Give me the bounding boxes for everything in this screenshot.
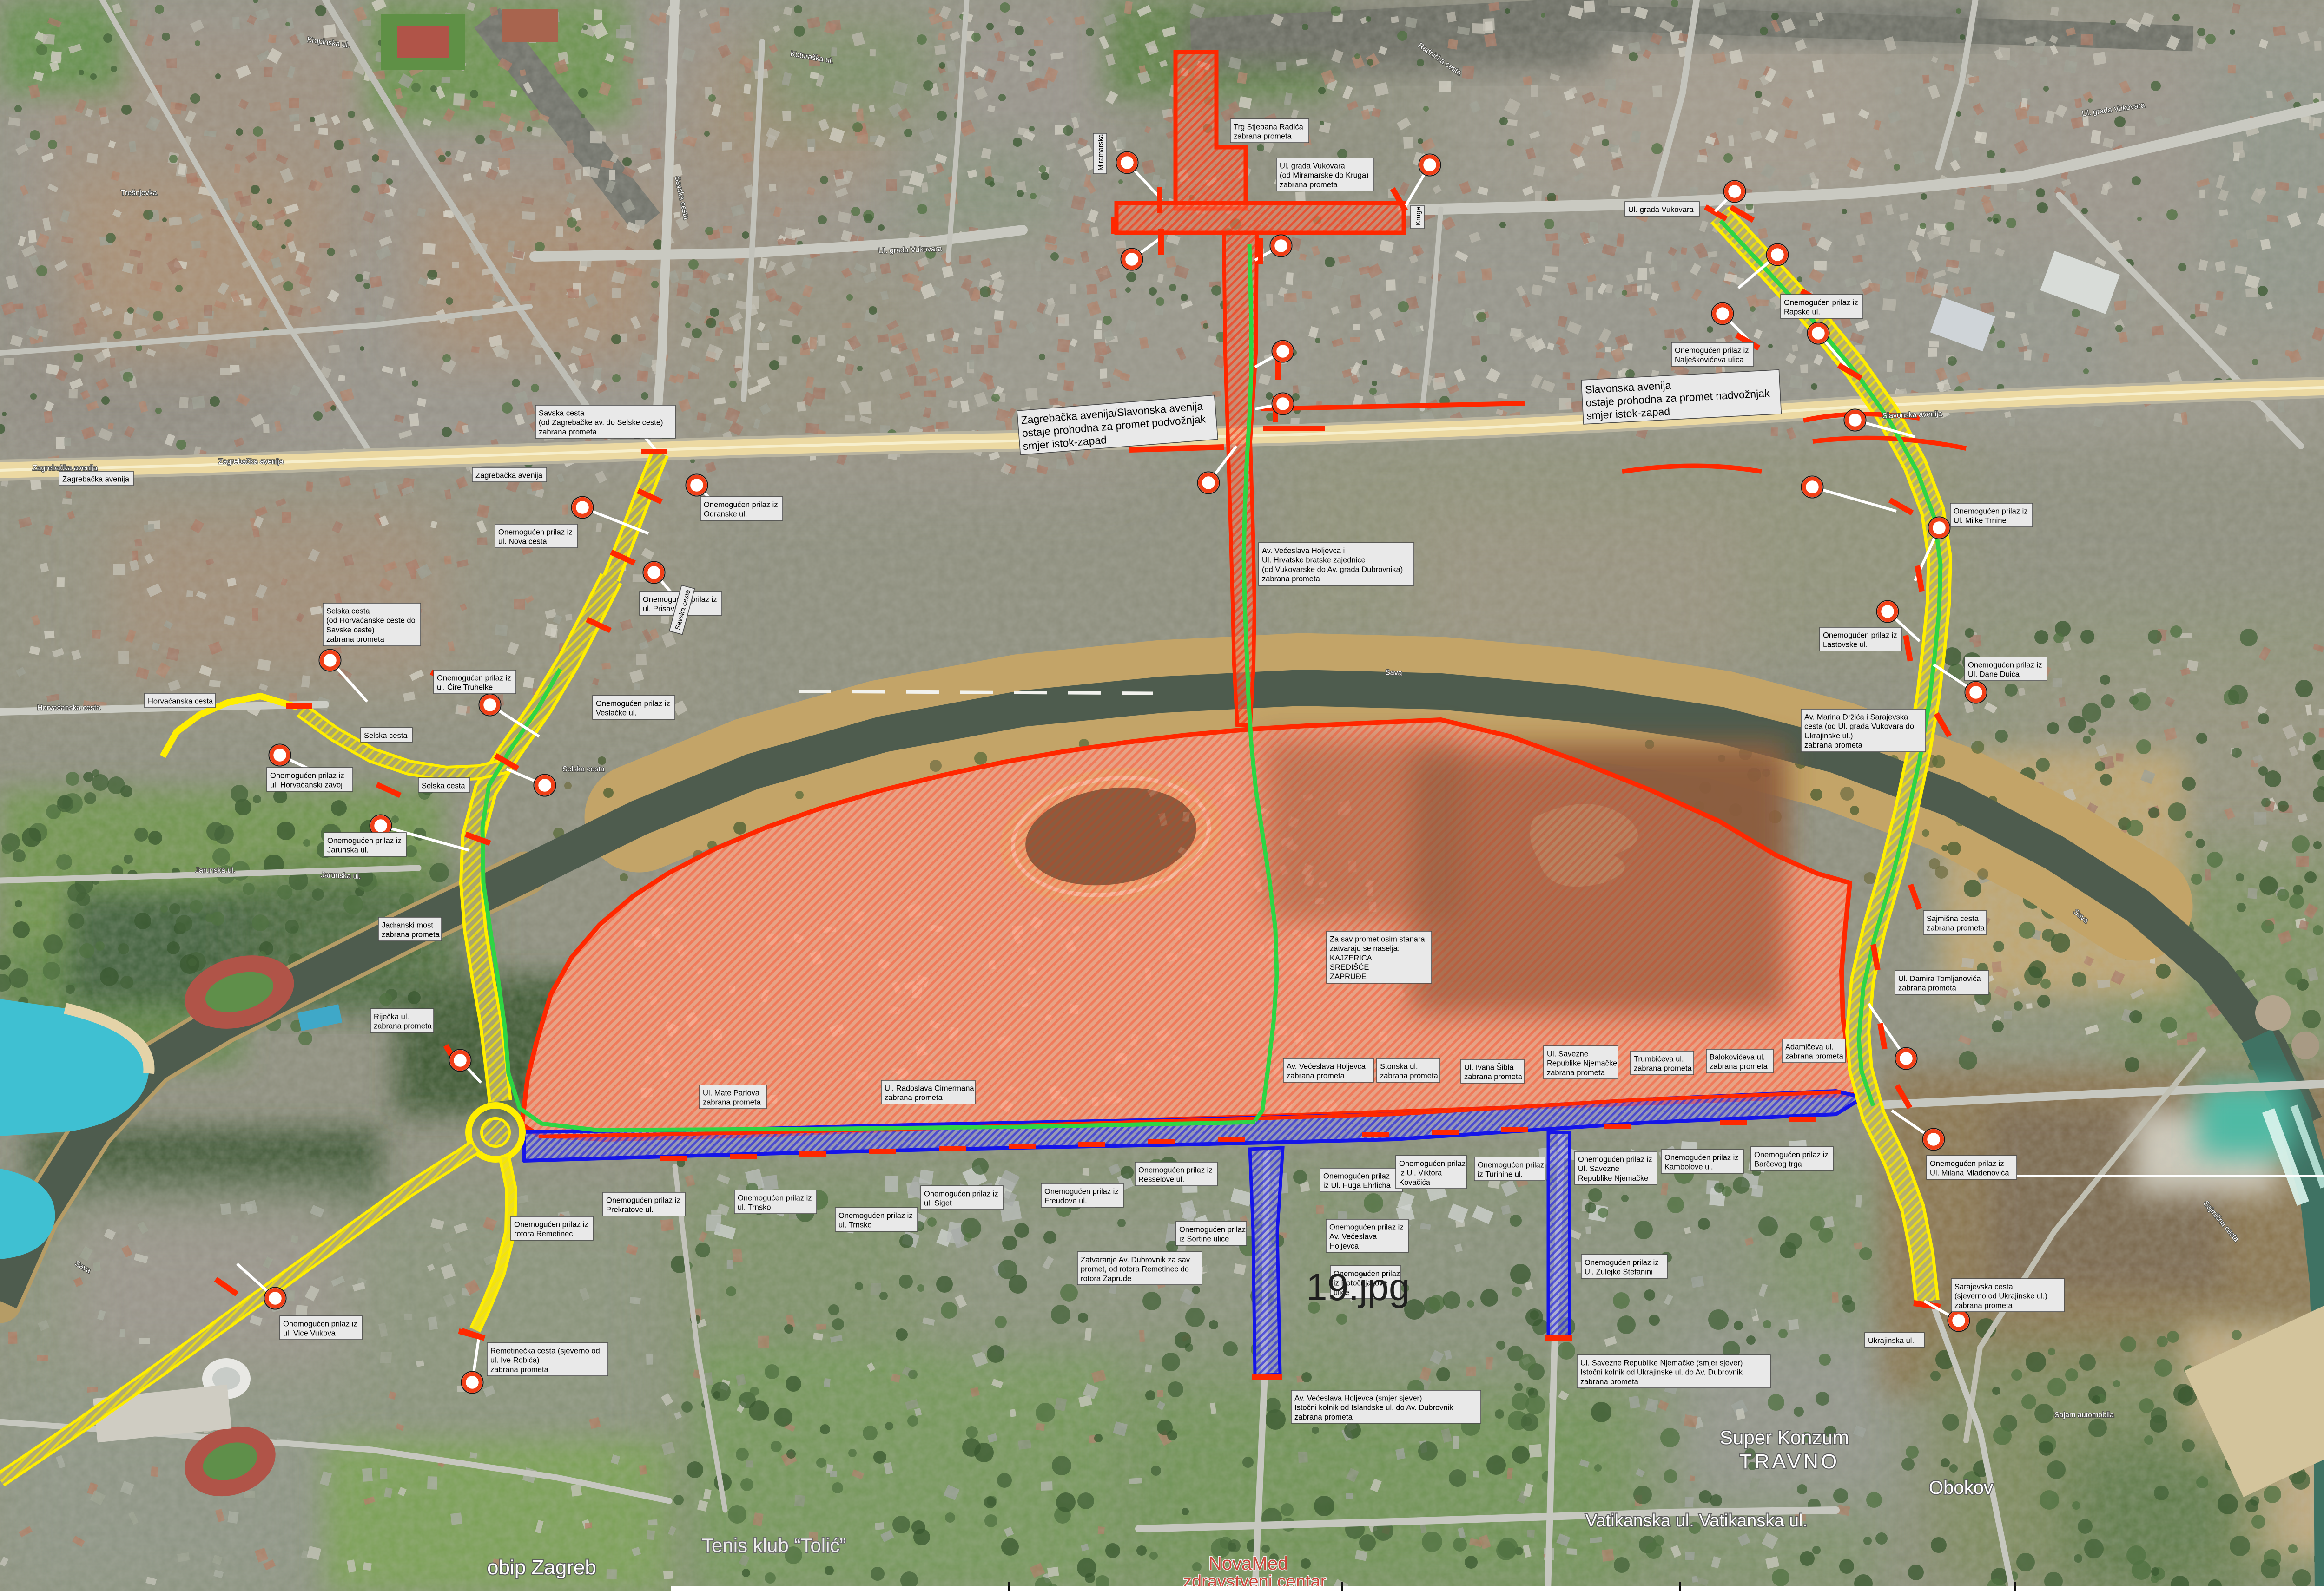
- svg-text:Kambolove ul.: Kambolove ul.: [1664, 1163, 1713, 1171]
- svg-text:zatvaraju se naselja:: zatvaraju se naselja:: [1330, 945, 1400, 953]
- svg-text:iz Turinine ul.: iz Turinine ul.: [1478, 1170, 1523, 1179]
- svg-text:Ul. Milke Trnine: Ul. Milke Trnine: [1954, 517, 2007, 525]
- svg-text:Onemogućen prilaz iz: Onemogućen prilaz iz: [270, 772, 344, 780]
- svg-text:Jadranski most: Jadranski most: [382, 921, 433, 930]
- svg-text:ul. Vice Vukova: ul. Vice Vukova: [283, 1329, 336, 1338]
- svg-text:NovaMed: NovaMed: [1208, 1553, 1288, 1574]
- svg-text:Istočni kolnik od Ukrajinske u: Istočni kolnik od Ukrajinske ul. do Av. …: [1580, 1368, 1743, 1377]
- svg-text:iz Ul. Huga Ehrlicha: iz Ul. Huga Ehrlicha: [1323, 1182, 1391, 1190]
- svg-text:Ul. Mate Parlova: Ul. Mate Parlova: [703, 1089, 760, 1098]
- svg-text:Ul. Zulejke Stefanini: Ul. Zulejke Stefanini: [1585, 1268, 1653, 1276]
- svg-text:ul. Horvaćanski zavoj: ul. Horvaćanski zavoj: [270, 781, 343, 789]
- svg-text:Onemogućen prilaz iz: Onemogućen prilaz iz: [838, 1212, 913, 1220]
- svg-text:zabrana prometa: zabrana prometa: [1547, 1069, 1605, 1077]
- svg-text:zabrana prometa: zabrana prometa: [885, 1094, 943, 1102]
- svg-text:zabrana prometa: zabrana prometa: [1785, 1052, 1844, 1061]
- svg-text:Zagrebačka avenija: Zagrebačka avenija: [218, 458, 284, 466]
- svg-text:Ul. grada Vukovara: Ul. grada Vukovara: [1628, 206, 1694, 214]
- svg-text:Jarunska ul.: Jarunska ul.: [195, 867, 235, 874]
- svg-text:Rapske ul.: Rapske ul.: [1784, 308, 1820, 316]
- svg-text:Horvaćanska cesta: Horvaćanska cesta: [148, 697, 213, 706]
- svg-text:Av. Marina Držića i Sarajevska: Av. Marina Držića i Sarajevska: [1804, 713, 1908, 722]
- svg-text:obip Zagreb: obip Zagreb: [487, 1556, 596, 1579]
- svg-text:Selska cesta: Selska cesta: [326, 607, 370, 616]
- svg-text:(od Zagrebačke av. do Selske c: (od Zagrebačke av. do Selske ceste): [539, 419, 663, 427]
- svg-text:Onemogućen prilaz iz: Onemogućen prilaz iz: [1578, 1156, 1652, 1164]
- svg-text:Sajmišna cesta: Sajmišna cesta: [1927, 915, 1979, 923]
- svg-text:Za sav promet osim stanara: Za sav promet osim stanara: [1330, 935, 1425, 944]
- svg-text:Onemogućen prilaz iz: Onemogućen prilaz iz: [327, 837, 402, 845]
- svg-text:promet, od rotora Remetinec do: promet, od rotora Remetinec do: [1081, 1265, 1189, 1274]
- svg-text:Trešnjevka: Trešnjevka: [121, 189, 157, 197]
- svg-text:Ul. Hrvatske bratske zajednice: Ul. Hrvatske bratske zajednice: [1262, 556, 1366, 565]
- svg-text:SREDIŠĆE: SREDIŠĆE: [1330, 963, 1369, 972]
- svg-text:Onemogućen prilaz iz: Onemogućen prilaz iz: [1954, 507, 2028, 516]
- svg-text:Remetinečka cesta (sjeverno od: Remetinečka cesta (sjeverno od: [490, 1347, 600, 1355]
- svg-text:Resselove ul.: Resselove ul.: [1138, 1176, 1184, 1184]
- svg-text:Stonska ul.: Stonska ul.: [1380, 1063, 1418, 1071]
- svg-text:Adamičeva ul.: Adamičeva ul.: [1785, 1043, 1834, 1052]
- svg-text:Zagrebačka avenija: Zagrebačka avenija: [62, 475, 130, 484]
- svg-text:ul. Nova cesta: ul. Nova cesta: [498, 538, 547, 546]
- svg-text:ul. Ćire Truhelke: ul. Ćire Truhelke: [437, 683, 493, 692]
- svg-text:zabrana prometa: zabrana prometa: [1804, 741, 1863, 749]
- svg-text:Veslačke ul.: Veslačke ul.: [596, 709, 637, 717]
- svg-text:Onemogućen prilaz iz: Onemogućen prilaz iz: [1930, 1160, 2004, 1168]
- svg-text:Odranske ul.: Odranske ul.: [704, 510, 747, 519]
- svg-text:iz Ul. Viktora: iz Ul. Viktora: [1399, 1169, 1442, 1177]
- svg-text:Savske ceste): Savske ceste): [326, 626, 375, 634]
- svg-text:Kovačića: Kovačića: [1399, 1178, 1431, 1187]
- svg-text:Av. Većeslava Holjevca: Av. Većeslava Holjevca: [1287, 1063, 1366, 1071]
- svg-text:ul. Trnsko: ul. Trnsko: [738, 1203, 771, 1212]
- svg-text:Sava: Sava: [1385, 669, 1402, 677]
- svg-text:TRAVNO: TRAVNO: [1739, 1450, 1840, 1473]
- svg-text:Onemogućen prilaz: Onemogućen prilaz: [1478, 1161, 1544, 1170]
- svg-text:Ul. Ivana Šibla: Ul. Ivana Šibla: [1464, 1063, 1514, 1072]
- svg-text:Sajam automobila: Sajam automobila: [2054, 1411, 2114, 1419]
- svg-text:ul. Trnsko: ul. Trnsko: [838, 1221, 872, 1229]
- svg-text:Onemogućen prilaz: Onemogućen prilaz: [1323, 1172, 1390, 1181]
- svg-text:zabrana prometa: zabrana prometa: [1280, 181, 1338, 189]
- svg-text:Onemogućen prilaz iz: Onemogućen prilaz iz: [924, 1190, 998, 1198]
- svg-text:Onemogućen prilaz iz: Onemogućen prilaz iz: [1754, 1151, 1829, 1159]
- svg-text:Jarunska ul.: Jarunska ul.: [327, 846, 369, 855]
- svg-text:Onemogućen prilaz iz: Onemogućen prilaz iz: [1044, 1188, 1119, 1196]
- svg-text:Trg Stjepana Radića: Trg Stjepana Radića: [1234, 123, 1304, 131]
- svg-text:Zatvaranje Av. Dubrovnik za sa: Zatvaranje Av. Dubrovnik za sav: [1081, 1256, 1190, 1264]
- svg-text:KAJZERICA: KAJZERICA: [1330, 954, 1372, 962]
- svg-text:Ul. Damira Tomljanovića: Ul. Damira Tomljanovića: [1898, 975, 1981, 983]
- svg-text:Lastovske ul.: Lastovske ul.: [1823, 641, 1868, 649]
- svg-text:(od Vukovarske do Av. grada Du: (od Vukovarske do Av. grada Dubrovnika): [1262, 565, 1403, 574]
- svg-text:Prekratove ul.: Prekratove ul.: [606, 1206, 654, 1214]
- svg-text:Ul. Savezne: Ul. Savezne: [1578, 1165, 1619, 1173]
- svg-text:Ul. Milana Mladenovića: Ul. Milana Mladenovića: [1930, 1169, 2009, 1177]
- svg-text:Ul. Savezne Republike Njemačke: Ul. Savezne Republike Njemačke (smjer sj…: [1580, 1359, 1743, 1367]
- svg-text:zabrana prometa: zabrana prometa: [1927, 924, 1985, 933]
- svg-text:19.jpg: 19.jpg: [1306, 1266, 1410, 1308]
- svg-text:Ul. Dane Duića: Ul. Dane Duića: [1968, 671, 2020, 679]
- svg-text:Av. Većeslava Holjevca (smjer: Av. Većeslava Holjevca (smjer sjever): [1294, 1394, 1422, 1403]
- svg-text:Onemogućen prilaz iz: Onemogućen prilaz iz: [437, 674, 511, 683]
- svg-text:rotora Zapruđe: rotora Zapruđe: [1081, 1275, 1131, 1283]
- svg-text:Av. Većeslava Holjevca i: Av. Većeslava Holjevca i: [1262, 547, 1345, 555]
- svg-text:Onemogućen prilaz iz: Onemogućen prilaz iz: [1329, 1223, 1404, 1232]
- svg-text:Horvaćanska cesta: Horvaćanska cesta: [37, 704, 100, 712]
- svg-text:Miramarska: Miramarska: [1097, 134, 1105, 171]
- svg-text:Obokov: Obokov: [1929, 1478, 1993, 1498]
- svg-text:zabrana prometa: zabrana prometa: [326, 635, 385, 644]
- svg-text:Trumbićeva ul.: Trumbićeva ul.: [1634, 1055, 1684, 1064]
- svg-text:zabrana prometa: zabrana prometa: [1380, 1072, 1439, 1080]
- svg-text:Onemogućen prilaz iz: Onemogućen prilaz iz: [1585, 1259, 1659, 1267]
- svg-text:(od Miramarske do Kruga): (od Miramarske do Kruga): [1280, 171, 1369, 180]
- svg-text:(od Horvaćanske ceste do: (od Horvaćanske ceste do: [326, 617, 416, 625]
- svg-text:Ukrajinska ul.: Ukrajinska ul.: [1868, 1337, 1914, 1345]
- svg-text:Onemogućen prilaz iz: Onemogućen prilaz iz: [704, 501, 778, 509]
- svg-text:iz Sortine ulice: iz Sortine ulice: [1179, 1235, 1229, 1243]
- svg-text:zabrana prometa: zabrana prometa: [490, 1366, 549, 1374]
- svg-text:zabrana prometa: zabrana prometa: [1580, 1378, 1639, 1386]
- svg-text:ZAPRUĐE: ZAPRUĐE: [1330, 973, 1367, 981]
- svg-text:Av. Većeslava: Av. Većeslava: [1329, 1233, 1377, 1241]
- svg-text:ul. Siget: ul. Siget: [924, 1199, 952, 1208]
- svg-text:zabrana prometa: zabrana prometa: [382, 931, 440, 939]
- svg-text:zabrana prometa: zabrana prometa: [1898, 984, 1957, 993]
- svg-text:Ul. Savezne: Ul. Savezne: [1547, 1050, 1588, 1058]
- svg-text:Zagrebačka avenija: Zagrebačka avenija: [475, 472, 543, 480]
- svg-text:Onemogućen prilaz iz: Onemogućen prilaz iz: [498, 528, 573, 537]
- svg-text:Istočni kolnik od Islandske ul: Istočni kolnik od Islandske ul. do Av. D…: [1294, 1404, 1453, 1412]
- svg-text:Republike Njemačke: Republike Njemačke: [1547, 1059, 1617, 1068]
- svg-text:Tenis klub “Tolić”: Tenis klub “Tolić”: [702, 1534, 846, 1556]
- svg-text:Onemogućen prilaz iz: Onemogućen prilaz iz: [596, 700, 670, 708]
- svg-text:Ul. grada Vukovara: Ul. grada Vukovara: [1280, 162, 1345, 171]
- svg-text:Onemogućen prilaz: Onemogućen prilaz: [1399, 1160, 1466, 1168]
- svg-text:zabrana prometa: zabrana prometa: [1710, 1063, 1768, 1071]
- svg-text:Onemogućen prilaz iz: Onemogućen prilaz iz: [1968, 661, 2042, 670]
- svg-text:Onemogućen prilaz iz: Onemogućen prilaz iz: [283, 1320, 357, 1328]
- svg-text:Holjevca: Holjevca: [1329, 1242, 1359, 1250]
- svg-text:zabrana prometa: zabrana prometa: [1287, 1072, 1345, 1080]
- svg-text:Selska cesta: Selska cesta: [422, 782, 465, 790]
- svg-text:zabrana prometa: zabrana prometa: [1464, 1073, 1523, 1081]
- svg-text:zabrana prometa: zabrana prometa: [1294, 1413, 1353, 1421]
- svg-text:Barčevog trga: Barčevog trga: [1754, 1160, 1802, 1169]
- svg-text:Onemogućen prilaz iz: Onemogućen prilaz iz: [738, 1194, 812, 1203]
- svg-text:Jarunska ul.: Jarunska ul.: [321, 871, 361, 881]
- svg-text:ul. Ive Robića): ul. Ive Robića): [490, 1356, 539, 1365]
- svg-text:Riječka ul.: Riječka ul.: [374, 1013, 409, 1021]
- svg-text:Onemogućen prilaz: Onemogućen prilaz: [1179, 1226, 1246, 1234]
- svg-text:zabrana prometa: zabrana prometa: [1262, 575, 1320, 583]
- svg-text:Onemogućen prilaz iz: Onemogućen prilaz iz: [514, 1221, 588, 1229]
- svg-text:Onemogućen prilaz iz: Onemogućen prilaz iz: [606, 1197, 680, 1205]
- svg-text:Kruge: Kruge: [1414, 207, 1422, 225]
- svg-text:Freudove ul.: Freudove ul.: [1044, 1197, 1087, 1205]
- svg-text:zabrana prometa: zabrana prometa: [703, 1098, 761, 1107]
- svg-text:Onemogućen prilaz iz: Onemogućen prilaz iz: [1784, 299, 1858, 307]
- svg-text:Onemogućen prilaz iz: Onemogućen prilaz iz: [1675, 347, 1749, 355]
- svg-text:Sarajevska cesta: Sarajevska cesta: [1954, 1283, 2013, 1291]
- svg-text:Ul. Radoslava Cimermana: Ul. Radoslava Cimermana: [885, 1085, 974, 1093]
- svg-text:zabrana prometa: zabrana prometa: [1234, 132, 1292, 141]
- svg-text:Republike Njemačke: Republike Njemačke: [1578, 1174, 1648, 1183]
- svg-text:Selska cesta: Selska cesta: [364, 732, 408, 740]
- svg-text:Onemogućen prilaz iz: Onemogućen prilaz iz: [1823, 631, 1897, 640]
- svg-text:Balokovićeva ul.: Balokovićeva ul.: [1710, 1053, 1765, 1062]
- svg-text:Nalješkovićeva ulica: Nalješkovićeva ulica: [1675, 356, 1744, 364]
- svg-text:Selska cesta: Selska cesta: [562, 765, 605, 773]
- svg-text:Savska cesta: Savska cesta: [539, 409, 585, 418]
- svg-text:zabrana prometa: zabrana prometa: [539, 428, 597, 436]
- svg-text:cesta (od Ul. grada Vukovara d: cesta (od Ul. grada Vukovara do: [1804, 723, 1914, 731]
- svg-text:rotora Remetinec: rotora Remetinec: [514, 1230, 573, 1238]
- svg-text:zabrana prometa: zabrana prometa: [1954, 1302, 2013, 1310]
- svg-text:Onemogućen prilaz iz: Onemogućen prilaz iz: [1664, 1154, 1739, 1162]
- svg-text:zabrana prometa: zabrana prometa: [1634, 1065, 1692, 1073]
- svg-text:(sjeverno od Ukrajinske ul.): (sjeverno od Ukrajinske ul.): [1954, 1292, 2047, 1301]
- svg-text:Onemogućen prilaz iz: Onemogućen prilaz iz: [1138, 1166, 1213, 1175]
- svg-text:Ukrajinske ul.): Ukrajinske ul.): [1804, 732, 1853, 740]
- svg-text:Super Konzum: Super Konzum: [1720, 1427, 1849, 1448]
- svg-text:Vatikanska ul. Vatikanska ul.: Vatikanska ul. Vatikanska ul.: [1585, 1511, 1808, 1531]
- svg-text:zabrana prometa: zabrana prometa: [374, 1022, 432, 1031]
